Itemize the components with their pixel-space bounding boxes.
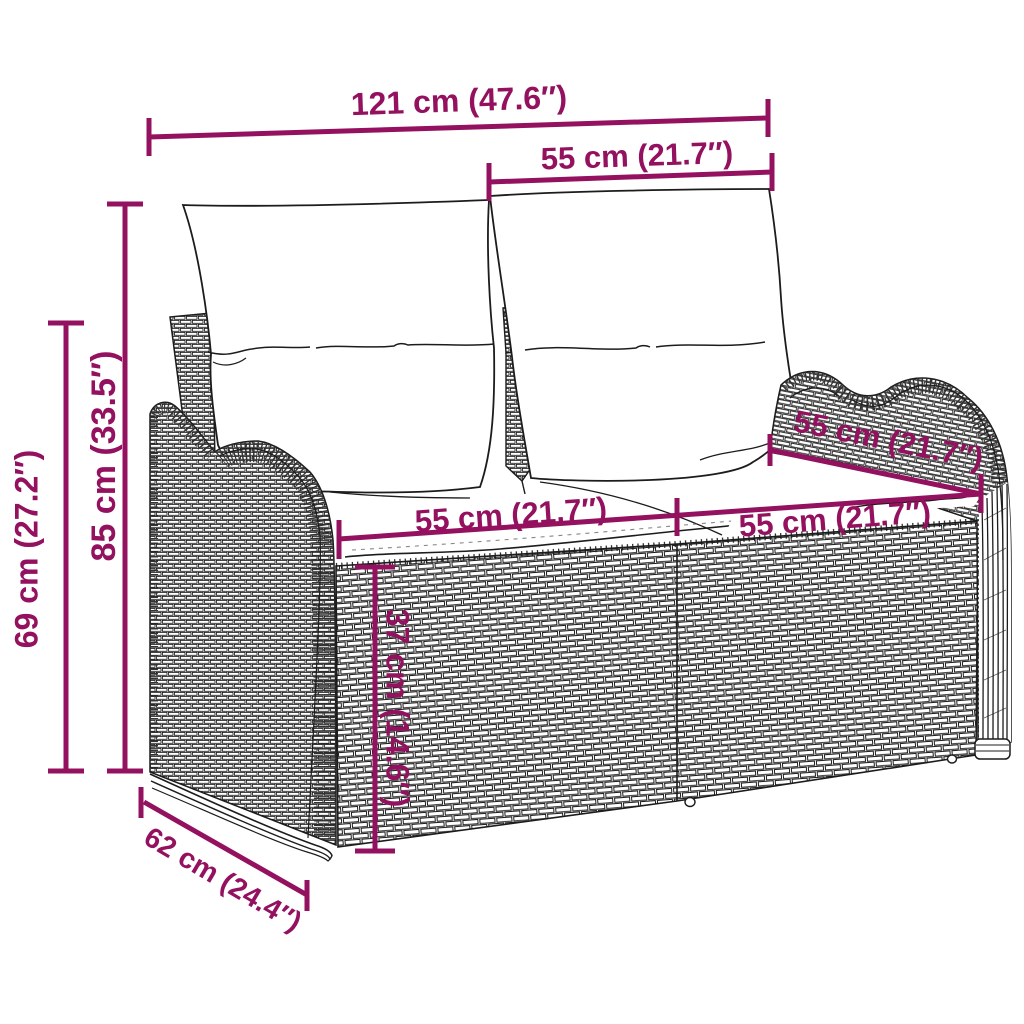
- svg-text:85 cm (33.5″): 85 cm (33.5″): [85, 351, 123, 562]
- svg-text:69 cm (27.2″): 69 cm (27.2″): [8, 450, 44, 649]
- svg-text:37 cm (14.6″): 37 cm (14.6″): [380, 609, 416, 808]
- svg-text:55 cm (21.7″): 55 cm (21.7″): [540, 135, 733, 177]
- svg-text:121 cm (47.6″): 121 cm (47.6″): [350, 79, 567, 123]
